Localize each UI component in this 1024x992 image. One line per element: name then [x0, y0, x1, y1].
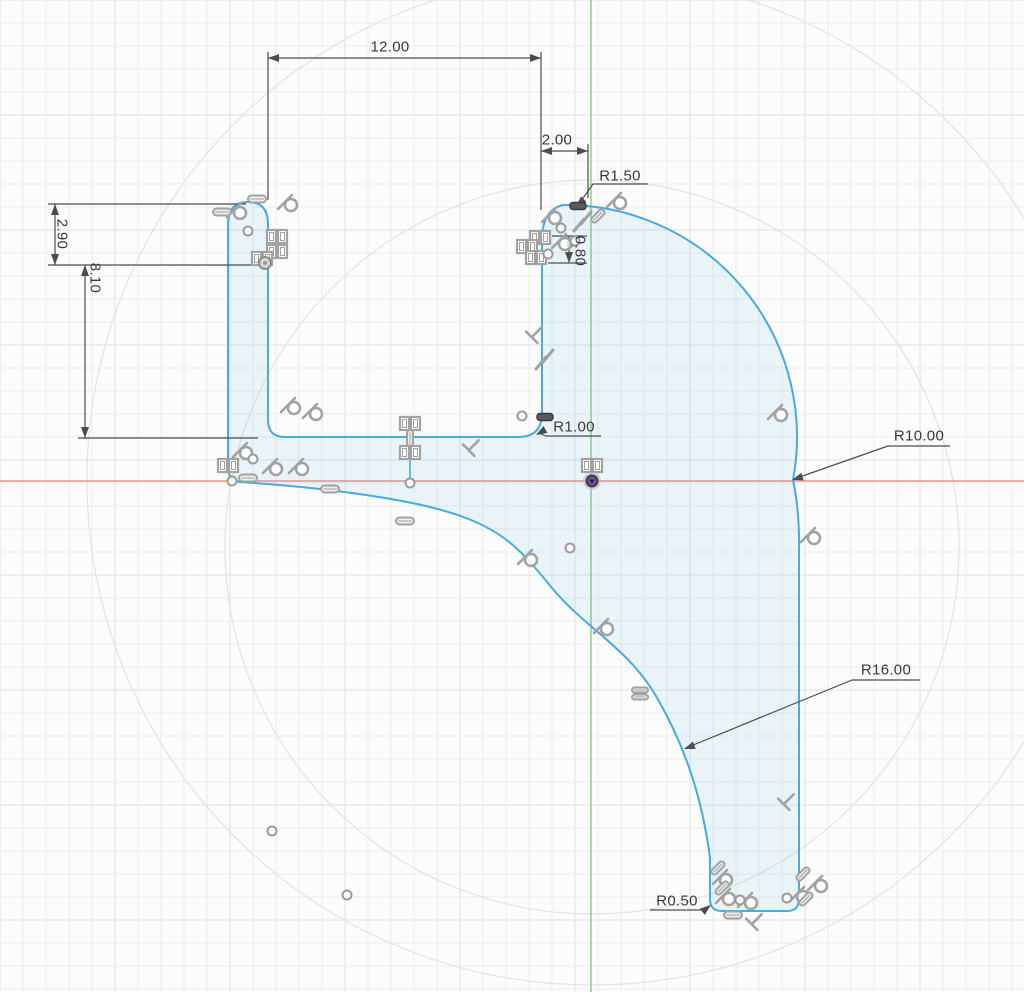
sketch-point[interactable] [249, 455, 258, 464]
vpill-constraint-icon[interactable] [407, 430, 413, 446]
dim-R0.50[interactable]: R0.50 [656, 894, 698, 909]
sketch-point[interactable] [244, 227, 253, 236]
gripdark-constraint-icon[interactable] [570, 203, 586, 210]
dim-R16.00[interactable]: R16.00 [861, 663, 911, 678]
pill-constraint-icon[interactable] [239, 475, 257, 482]
tangent-constraint-icon[interactable] [801, 528, 820, 544]
tangent-constraint-icon[interactable] [278, 195, 297, 211]
dim-12.00[interactable]: 12.00 [370, 40, 409, 55]
sketch-point[interactable] [783, 894, 792, 903]
sketch-point[interactable] [518, 412, 527, 421]
gripring-constraint-icon[interactable] [259, 257, 271, 269]
pill-constraint-icon[interactable] [213, 209, 231, 216]
dim-R1.00[interactable]: R1.00 [553, 420, 595, 435]
tangent-constraint-icon[interactable] [808, 876, 827, 892]
pill-constraint-icon[interactable] [321, 486, 339, 493]
sketch-point[interactable] [406, 479, 415, 488]
dim-2.90[interactable]: 2.90 [55, 219, 70, 249]
sketch-point[interactable] [268, 827, 277, 836]
sketch-point[interactable] [736, 896, 745, 905]
dim-8.10[interactable]: 8.10 [88, 263, 103, 293]
dim-R10.00[interactable]: R10.00 [894, 429, 944, 444]
sketch-geometry [0, 0, 1024, 992]
pill-constraint-icon[interactable] [724, 912, 742, 919]
dim-2.00[interactable]: 2.00 [542, 133, 572, 148]
pill-constraint-icon[interactable] [248, 196, 266, 203]
sq-constraint-icon[interactable] [218, 459, 238, 472]
dim-R1.50[interactable]: R1.50 [599, 169, 641, 184]
sketch-point[interactable] [566, 544, 575, 553]
gripdark-constraint-icon[interactable] [537, 414, 553, 421]
sketch-point[interactable] [228, 477, 237, 486]
sketch-point[interactable] [343, 891, 352, 900]
tangent-constraint-icon[interactable] [281, 398, 300, 414]
sketch-point[interactable] [544, 250, 553, 259]
sq-constraint-icon[interactable] [400, 417, 420, 430]
sketch-point[interactable] [557, 224, 566, 233]
dblpill-constraint-icon[interactable] [632, 688, 648, 700]
sq-constraint-icon[interactable] [582, 459, 602, 472]
sq-constraint-icon[interactable] [400, 446, 420, 459]
tangent-constraint-icon[interactable] [303, 404, 322, 420]
pill-constraint-icon[interactable] [396, 518, 414, 525]
dim-0.80[interactable]: 0.80 [573, 236, 588, 266]
sq-constraint-icon[interactable] [267, 230, 287, 243]
sketch-canvas[interactable]: 12.00 2.00 2.90 8.10 0.80 R1.50 R1.00 R1… [0, 0, 1024, 992]
